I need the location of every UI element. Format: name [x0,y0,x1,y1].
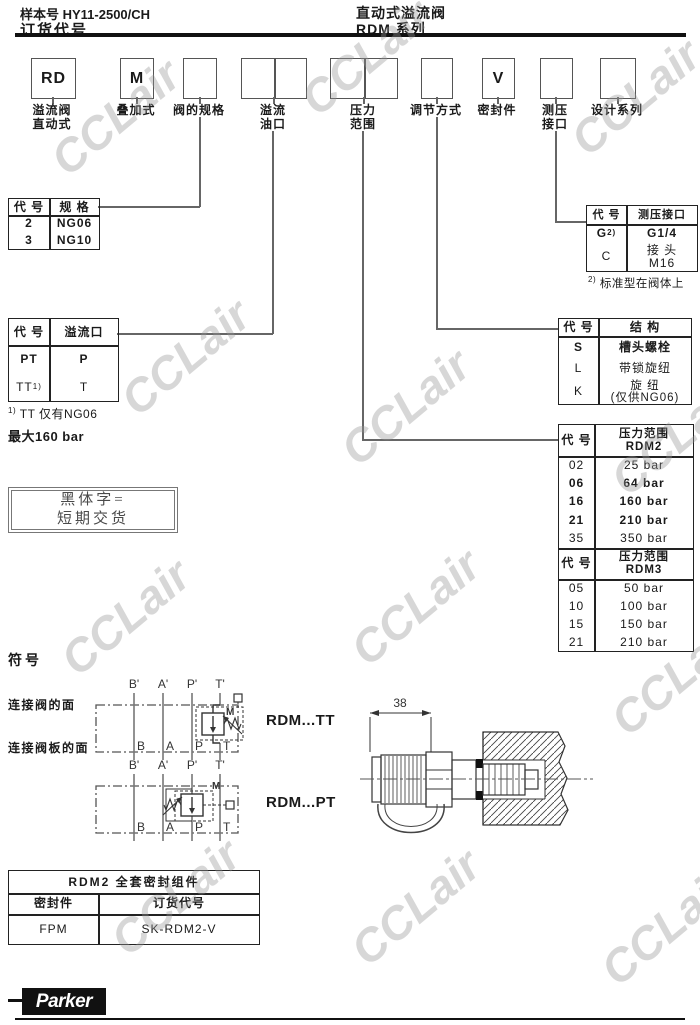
svg-text:P': P' [187,758,197,772]
watermark: CCLair [340,838,490,976]
table-cell: 210 bar [595,633,693,651]
watermark: CCLair [110,288,260,426]
table-cell: SK-RDM2-V [99,914,259,944]
svg-text:A': A' [158,677,168,691]
connector-size-v [199,117,201,207]
table-cell: TT1) [9,373,49,401]
svg-text:B: B [137,820,145,834]
order-code-box-size [183,58,217,99]
table-cell: 接 头M16 [627,242,697,271]
table-cell: NG10 [50,232,99,249]
footnote-ref: 1) [8,406,16,415]
svg-text:A': A' [158,758,168,772]
port-labels-bottom: B A P T [137,820,231,834]
table-cell: 带锁旋纽 [599,358,691,379]
gauge-table: 代 号 测压接口 G2) G1/4 C 接 头M16 [586,205,698,272]
parker-logo: Parker [22,988,106,1015]
table-cell: P [50,345,118,373]
order-code-box-seal: V [482,58,515,99]
table-cell: 50 bar [595,579,693,597]
connector-port-v [272,131,274,334]
order-code-box-m: M [120,58,154,99]
port-footnote: 1) TT 仅有NG06 [8,405,97,422]
footnote-text: TT 仅有NG06 [20,407,98,421]
order-code-label-sandwich: 叠加式 [104,103,168,117]
plate-side-label: 连接阀板的面 [8,739,89,756]
table-cell: 21 [559,511,594,529]
port-labels-top: B' A' P' T' [129,677,225,691]
table-cell: T [50,373,118,401]
header-rule [15,33,686,37]
watermark: CCLair [340,538,490,676]
header-cell: 代 号 [9,319,49,345]
cell-text: 压力范围 [619,551,669,564]
order-code-label-port: 溢流油口 [241,103,305,131]
note-line: 短期交货 [57,510,129,529]
table-cell: 35 [559,529,594,548]
seal-kit-table: RDM2 全套密封组件 密封件 订货代号 FPM SK-RDM2-V [8,870,260,945]
header-cell: 测压接口 [627,206,697,224]
table-cell: K [559,379,598,404]
order-code-label-adjust: 调节方式 [404,103,468,117]
svg-text:P: P [195,739,203,753]
table-cell: 16 [559,492,594,511]
header-cell: 代 号 [9,199,49,215]
order-code-label-seal: 密封件 [465,103,529,117]
header-cell: 代 号 [587,206,626,224]
order-code-label-relief: 溢流阀直动式 [20,103,84,131]
seal-table-title: RDM2 全套密封组件 [9,871,259,893]
dimension-value: 38 [393,696,407,710]
hydraulic-symbol-pt: B' A' P' T' B A P T M [90,756,250,848]
cell-text: (仅供NG06) [611,392,680,404]
table-cell: 3 [9,232,49,249]
dimension-38 [370,710,431,752]
cell-text: M16 [647,257,677,270]
header-cell: 代 号 [559,319,598,336]
code-text: M [130,70,144,88]
header-cell: 代 号 [559,548,594,579]
svg-text:T: T [223,739,231,753]
order-code-box-port [241,58,307,99]
code-text: RD [41,70,66,88]
port-labels-bottom: B A P T [137,739,231,753]
size-table: 代 号 规 格 2 NG06 3 NG10 [8,198,100,250]
cell-text: TT [16,381,33,394]
catalog-page: 样本号 HY11-2500/CH 订货代号 直动式溢流阀 RDM 系列 RD M… [0,0,700,1025]
order-code-label-gauge: 测压接口 [523,103,587,131]
table-cell: 210 bar [595,511,693,529]
table-cell: 10 [559,597,594,615]
watermark: CCLair [50,548,200,686]
order-code-box-pressure [330,58,398,99]
footer-rule [15,1018,685,1020]
gauge-coupling-drawing: 38 [358,690,648,845]
watermark: CCLair [590,858,700,996]
connector-adjust-v [436,117,438,329]
order-code-label-series: 设计系列 [585,103,649,117]
table-cell: 150 bar [595,615,693,633]
table-cell: 160 bar [595,492,693,511]
delivery-note-box: 黑体字= 短期交货 [8,487,178,533]
box-divider [364,59,366,98]
header-cell: 规 格 [50,199,99,215]
port-lines [134,693,220,760]
header-cell: 压力范围RDM3 [595,548,693,579]
port-lines [134,774,220,841]
table-cell: S [559,336,598,358]
lanyard-loop [378,804,444,833]
connector-port-h [117,333,273,335]
header-cell: 代 号 [559,425,594,456]
delivery-note-inner: 黑体字= 短期交货 [11,490,175,530]
table-cell: 350 bar [595,529,693,548]
box-divider [274,59,276,98]
note-line: 黑体字= [60,491,125,510]
cell-text: 压力范围 [619,428,669,441]
connector-adjust-h [436,328,558,330]
watermark: CCLair [330,338,480,476]
table-cell: 25 bar [595,456,693,474]
order-code-label-pressure: 压力范围 [331,103,395,131]
table-cell: 100 bar [595,597,693,615]
table-cell: 15 [559,615,594,633]
relief-valve-symbol [163,789,234,821]
code-text: V [493,70,505,88]
adjust-table: 代 号 结 构 S 槽头螺栓 L 带锁旋纽 K 旋 纽(仅供NG06) [558,318,692,405]
valve-side-label: 连接阀的面 [8,696,76,713]
table-cell: 槽头螺栓 [599,336,691,358]
header-cell: 订货代号 [99,893,259,914]
table-cell: 05 [559,579,594,597]
connector-size-h [98,206,200,208]
symbols-section-title: 符号 [8,650,42,670]
order-code-box-series [600,58,636,99]
table-cell: 2 [9,215,49,232]
connector-gauge-h [555,221,586,223]
table-cell: G1/4 [627,224,697,242]
diagram2-name: RDM...PT [266,794,336,811]
adjuster-letter: M [226,707,234,718]
diagram1-name: RDM...TT [266,712,335,729]
svg-text:T': T' [215,758,225,772]
gauge-footnote: 2) 标准型在阀体上 [588,275,684,291]
svg-text:T: T [223,820,231,834]
table-cell: 64 bar [595,474,693,492]
order-code-box-gauge [540,58,573,99]
table-cell: L [559,358,598,379]
connector-pressure-h [362,439,558,441]
table-cell: PT [9,345,49,373]
header-cell: 溢流口 [50,319,118,345]
table-cell: FPM [9,914,98,944]
svg-text:B': B' [129,758,139,772]
svg-text:A: A [166,820,174,834]
cell-text: 接 头 [647,244,677,257]
svg-text:B': B' [129,677,139,691]
svg-text:T': T' [215,677,225,691]
port-labels-top: B' A' P' T' [129,758,225,772]
table-cell: C [587,242,626,271]
table-cell: 21 [559,633,594,651]
header-cell: 结 构 [599,319,691,336]
order-code-label-size: 阀的规格 [167,103,231,117]
order-code-box-adjust [421,58,453,99]
cell-text: RDM2 [619,441,669,454]
hydraulic-symbol-tt: B' A' P' T' B A P T M [90,675,250,767]
cell-text: RDM3 [619,564,669,577]
pressure-table: 代 号 压力范围RDM2 02 25 bar 06 64 bar 16 160 … [558,424,694,652]
connector-gauge-v [555,131,557,222]
svg-text:P: P [195,820,203,834]
order-code-box-rd: RD [31,58,76,99]
table-cell: NG06 [50,215,99,232]
svg-text:A: A [166,739,174,753]
cell-text: 旋 纽 [611,380,680,392]
header-cell: 压力范围RDM2 [595,425,693,456]
port-table: 代 号 溢流口 PT P TT1) T [8,318,119,402]
max-pressure-note: 最大160 bar [8,426,84,445]
header-cell: 密封件 [9,893,98,914]
table-cell: 旋 纽(仅供NG06) [599,379,691,404]
svg-text:P': P' [187,677,197,691]
svg-text:B: B [137,739,145,753]
cell-text: G [597,227,607,240]
table-cell: G2) [587,224,626,242]
page-title: 订货代号 [20,19,88,40]
table-cell: 02 [559,456,594,474]
connector-pressure-v [362,131,364,440]
footnote-ref: 2) [588,275,596,284]
table-cell: 06 [559,474,594,492]
adjuster-letter: M [212,781,220,792]
footnote-text: 标准型在阀体上 [600,278,684,290]
